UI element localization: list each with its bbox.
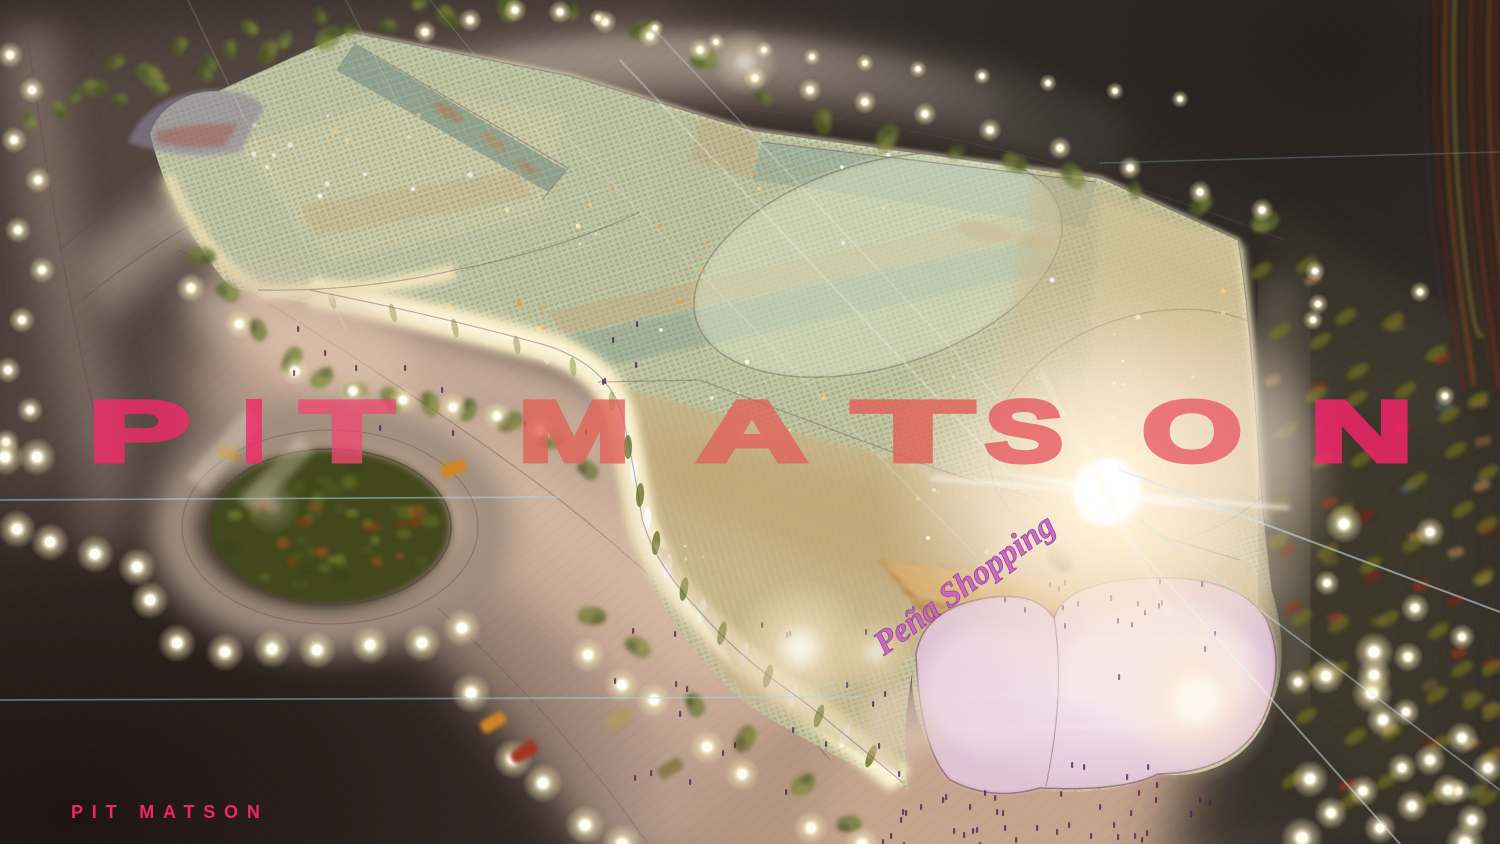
svg-text:T: T — [853, 384, 973, 480]
svg-text:I: I — [243, 384, 265, 480]
svg-text:A: A — [697, 384, 807, 480]
svg-text:M: M — [518, 384, 630, 480]
svg-text:PIT MATSON: PIT MATSON — [71, 802, 269, 822]
svg-text:P: P — [88, 384, 190, 480]
svg-text:S: S — [985, 384, 1063, 480]
svg-text:T: T — [301, 384, 393, 480]
svg-text:O: O — [1142, 384, 1242, 480]
svg-text:N: N — [1310, 384, 1413, 480]
